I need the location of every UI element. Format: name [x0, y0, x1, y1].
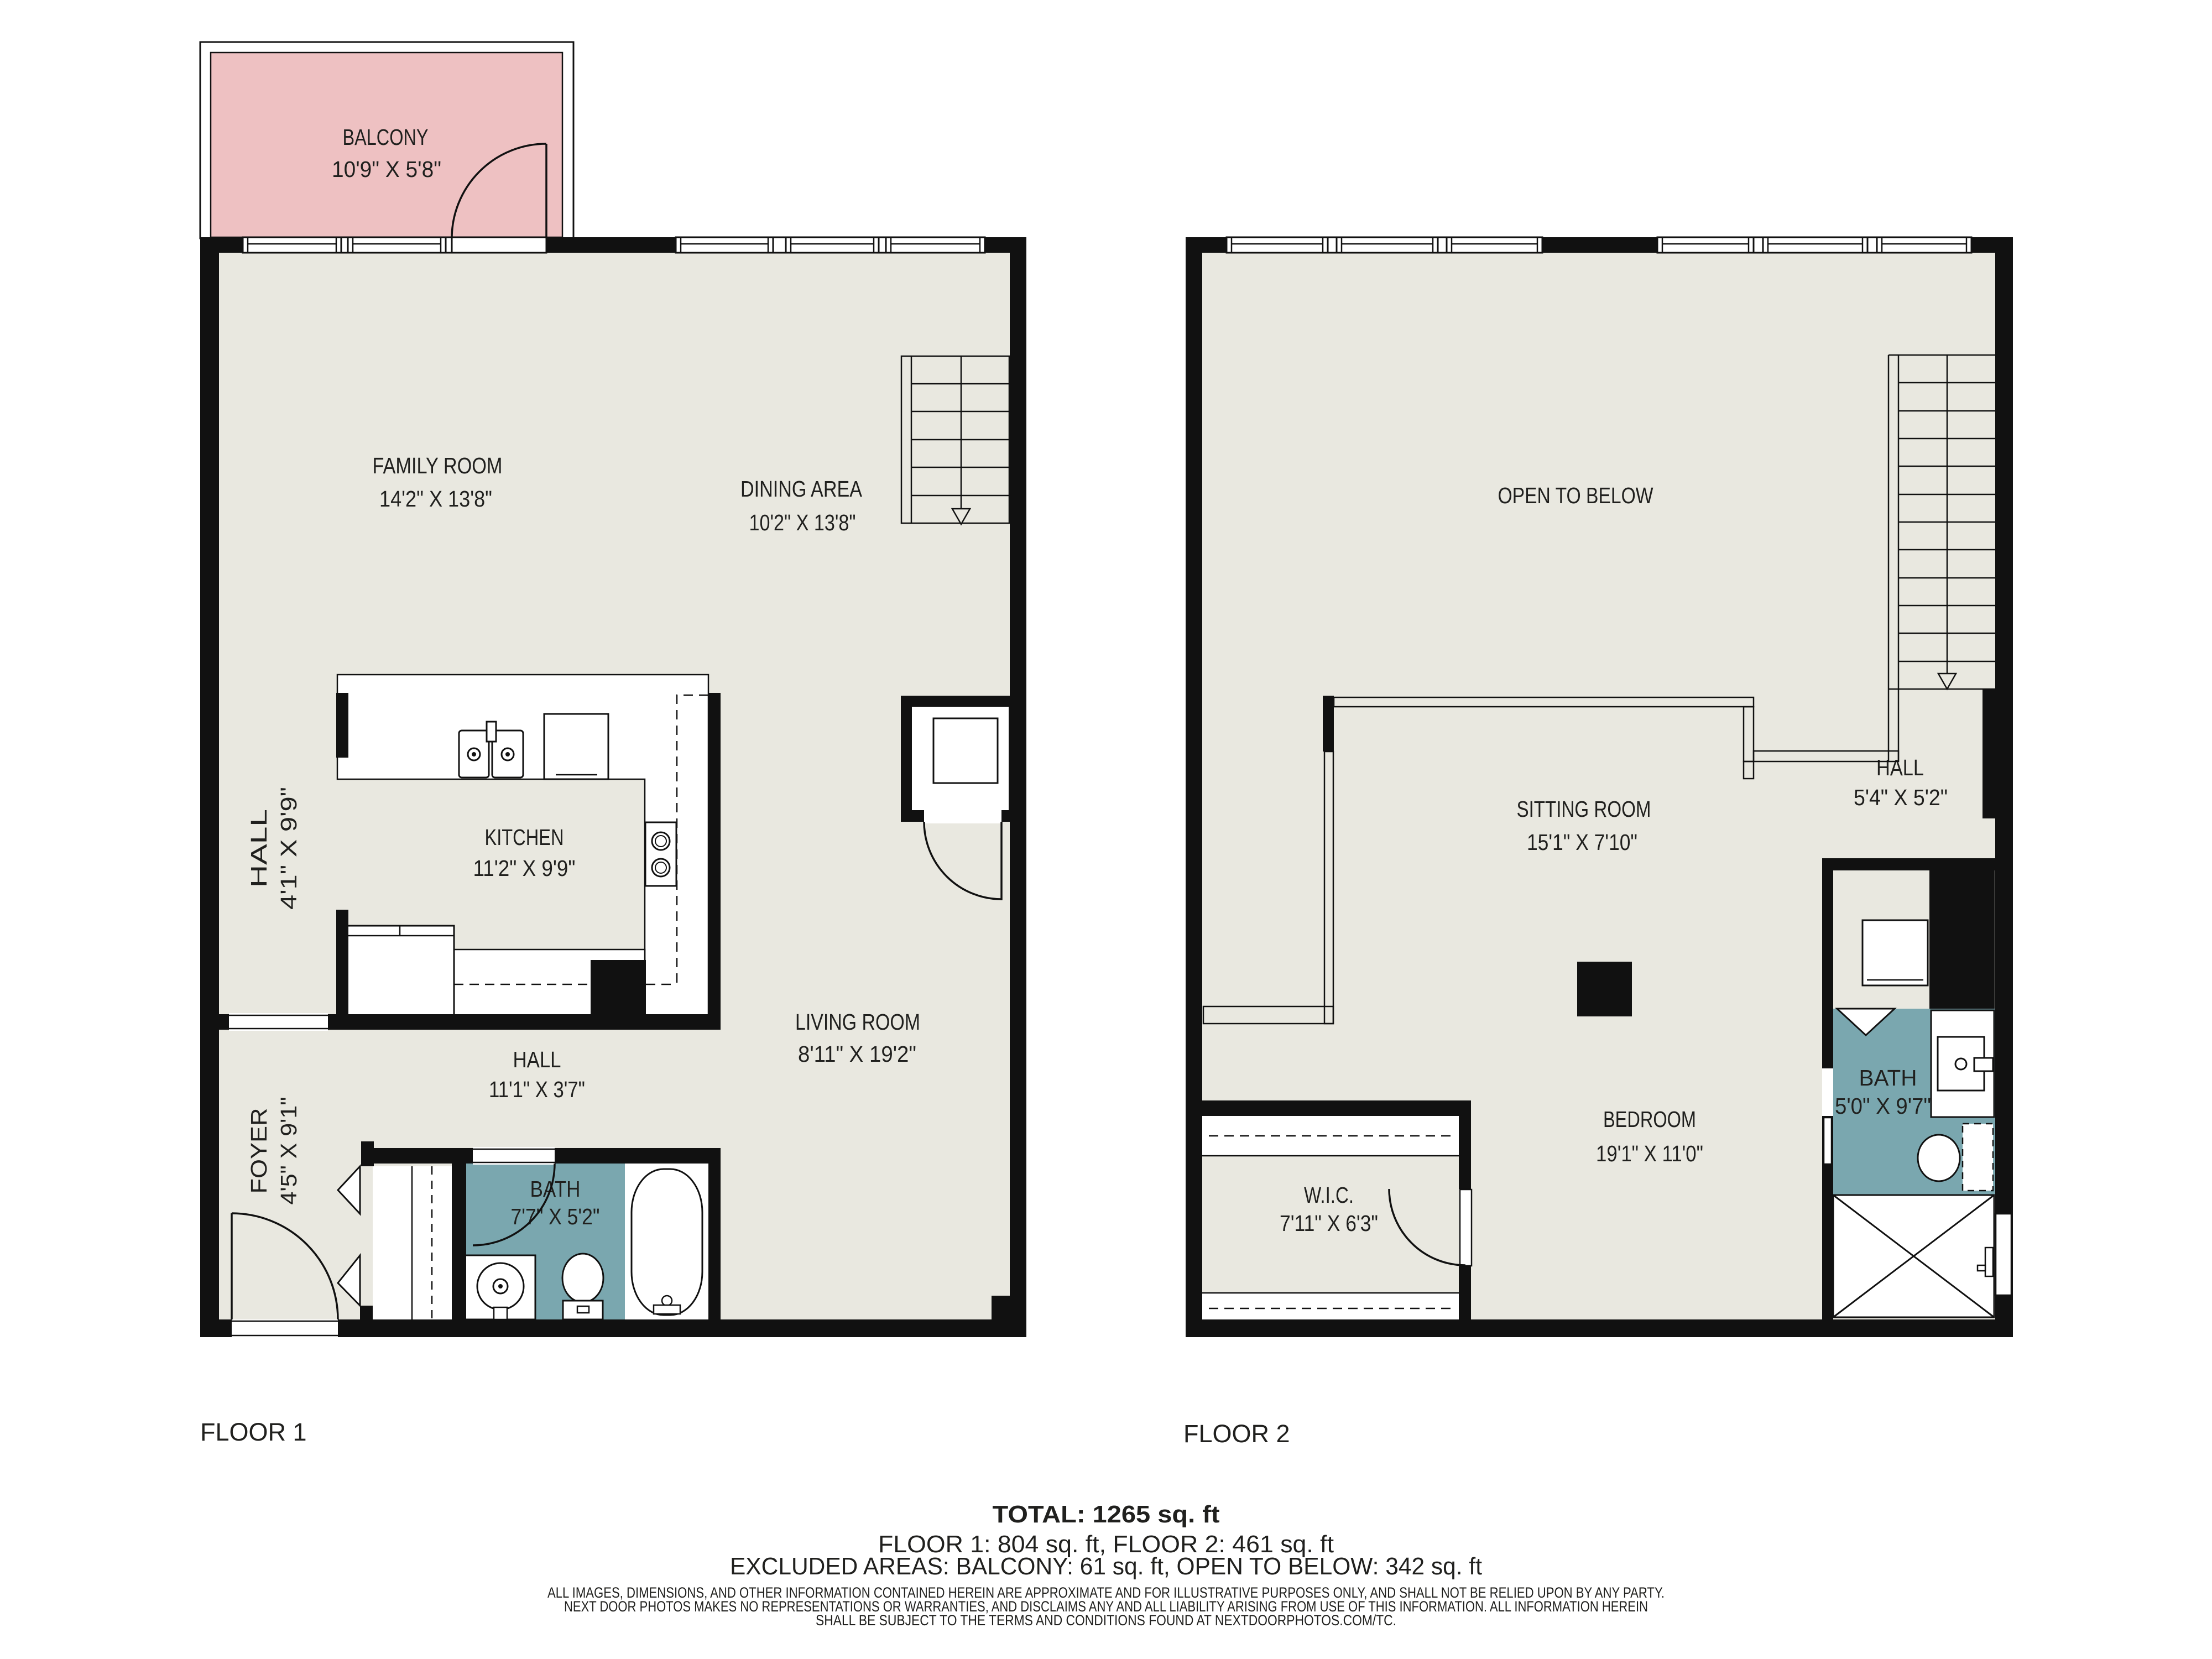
svg-text:11'1" X 3'7": 11'1" X 3'7"	[489, 1077, 585, 1102]
svg-text:8'11" X 19'2": 8'11" X 19'2"	[798, 1041, 916, 1067]
svg-text:SITTING ROOM: SITTING ROOM	[1517, 796, 1651, 822]
svg-text:SHALL BE SUBJECT TO THE TERMS: SHALL BE SUBJECT TO THE TERMS AND CONDIT…	[816, 1612, 1396, 1629]
svg-text:HALL: HALL	[513, 1047, 561, 1072]
svg-text:KITCHEN: KITCHEN	[485, 825, 564, 850]
svg-text:BATH: BATH	[1859, 1065, 1917, 1091]
svg-text:HALL: HALL	[1876, 755, 1924, 780]
svg-text:4'1" X 9'9": 4'1" X 9'9"	[276, 787, 301, 910]
svg-text:LIVING ROOM: LIVING ROOM	[795, 1009, 920, 1035]
svg-text:OPEN TO BELOW: OPEN TO BELOW	[1498, 483, 1653, 508]
svg-text:DINING AREA: DINING AREA	[740, 476, 863, 502]
svg-text:BEDROOM: BEDROOM	[1603, 1107, 1696, 1132]
svg-text:FAMILY ROOM: FAMILY ROOM	[373, 453, 503, 478]
svg-text:14'2" X 13'8": 14'2" X 13'8"	[379, 486, 492, 512]
svg-text:W.I.C.: W.I.C.	[1304, 1182, 1354, 1208]
svg-text:15'1" X 7'10": 15'1" X 7'10"	[1527, 830, 1637, 855]
svg-text:BATH: BATH	[530, 1176, 581, 1202]
svg-text:11'2" X 9'9": 11'2" X 9'9"	[473, 855, 576, 881]
svg-text:7'7" X 5'2": 7'7" X 5'2"	[511, 1204, 600, 1229]
svg-text:FLOOR 1: FLOOR 1	[200, 1418, 307, 1446]
svg-text:5'4" X 5'2": 5'4" X 5'2"	[1854, 785, 1948, 810]
svg-text:BALCONY: BALCONY	[343, 124, 429, 150]
svg-text:10'9" X 5'8": 10'9" X 5'8"	[332, 156, 441, 182]
svg-text:EXCLUDED AREAS: BALCONY: 61 sq: EXCLUDED AREAS: BALCONY: 61 sq. ft, OPEN…	[730, 1553, 1482, 1580]
svg-text:TOTAL: 1265 sq. ft: TOTAL: 1265 sq. ft	[993, 1501, 1220, 1528]
svg-text:FOYER: FOYER	[246, 1108, 272, 1194]
svg-text:FLOOR 2: FLOOR 2	[1183, 1420, 1290, 1448]
svg-text:10'2" X 13'8": 10'2" X 13'8"	[749, 510, 856, 535]
svg-text:7'11" X 6'3": 7'11" X 6'3"	[1280, 1211, 1378, 1236]
svg-text:5'0" X 9'7": 5'0" X 9'7"	[1835, 1093, 1931, 1119]
svg-text:4'5" X 9'1": 4'5" X 9'1"	[276, 1097, 301, 1205]
svg-text:HALL: HALL	[246, 809, 272, 888]
svg-text:19'1" X 11'0": 19'1" X 11'0"	[1596, 1141, 1703, 1166]
